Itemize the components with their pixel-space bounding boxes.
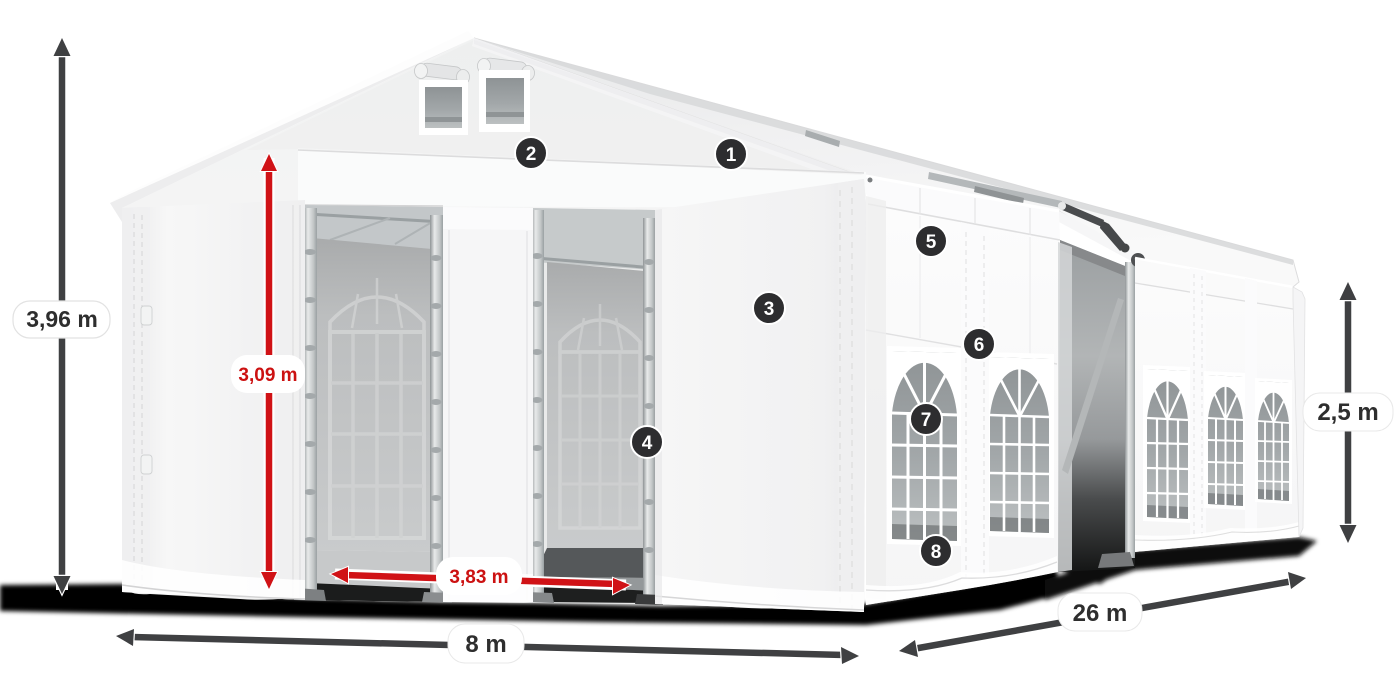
svg-text:3,83 m: 3,83 m	[449, 567, 508, 588]
svg-text:4: 4	[642, 433, 653, 454]
svg-text:26 m: 26 m	[1073, 600, 1128, 627]
svg-text:8 m: 8 m	[465, 631, 506, 658]
svg-text:3,96 m: 3,96 m	[26, 306, 98, 332]
svg-text:5: 5	[926, 232, 937, 253]
svg-text:7: 7	[921, 410, 932, 431]
svg-text:1: 1	[726, 145, 737, 166]
svg-text:3: 3	[764, 299, 775, 320]
svg-text:2: 2	[526, 144, 537, 165]
svg-text:6: 6	[974, 335, 985, 356]
svg-text:3,09 m: 3,09 m	[238, 365, 297, 386]
svg-text:2,5 m: 2,5 m	[1317, 399, 1378, 426]
svg-text:8: 8	[931, 542, 942, 563]
